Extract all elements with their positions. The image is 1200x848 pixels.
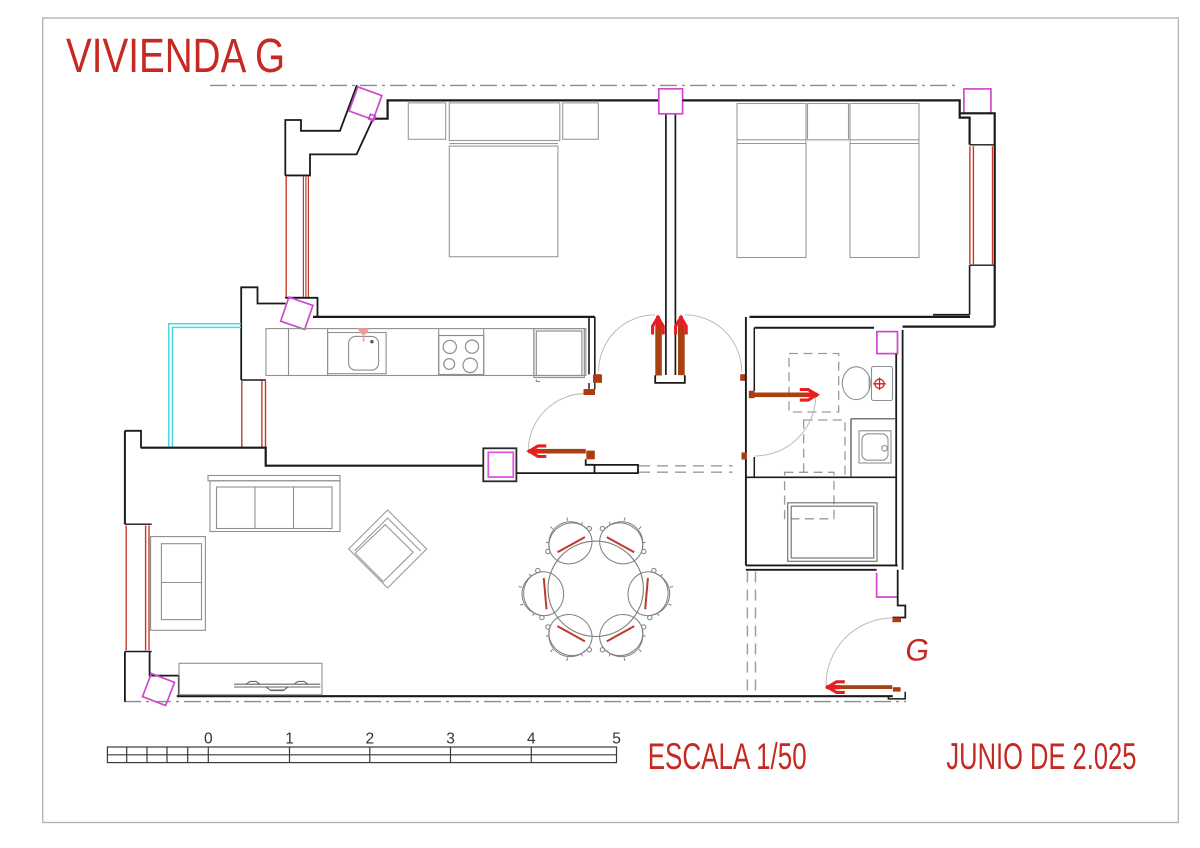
svg-text:2: 2	[365, 731, 374, 748]
svg-text:G: G	[903, 633, 932, 668]
svg-text:4: 4	[527, 731, 536, 748]
svg-text:0: 0	[204, 731, 213, 748]
svg-text:VIVIENDA G: VIVIENDA G	[66, 30, 285, 83]
svg-text:1: 1	[285, 731, 294, 748]
svg-text:JUNIO DE 2.025: JUNIO DE 2.025	[946, 735, 1136, 777]
svg-text:ESCALA 1/50: ESCALA 1/50	[648, 735, 807, 777]
svg-text:3: 3	[446, 731, 455, 748]
svg-text:5: 5	[612, 731, 621, 748]
